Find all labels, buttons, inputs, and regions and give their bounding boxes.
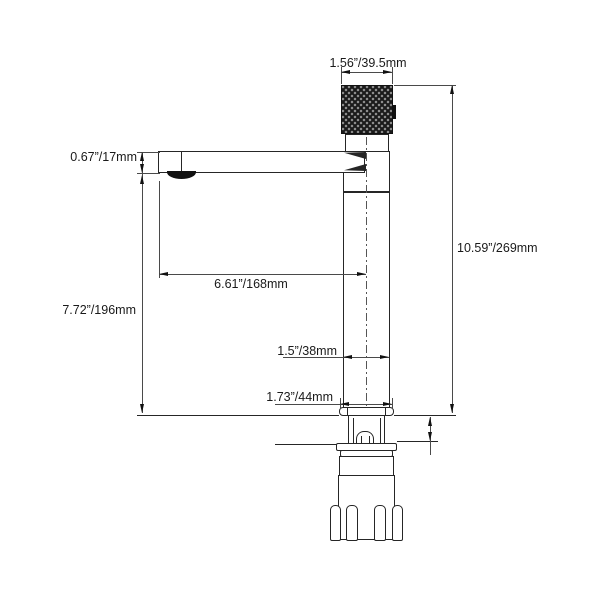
dim-arrow	[357, 272, 366, 276]
ext-line-knob-right	[392, 67, 393, 84]
drawing-canvas: 1.56”/39.5mm 10.59”/269mm 0.67”/17mm 7.7…	[0, 0, 600, 600]
nut-rib-4	[392, 505, 403, 541]
handle-side-tab	[392, 105, 396, 119]
dim-line-overall-height	[452, 85, 453, 413]
deck-line-right	[394, 415, 456, 416]
handle-neck	[345, 134, 389, 152]
dim-arrow	[140, 404, 144, 413]
shank-thread-left	[353, 418, 354, 444]
shank-outer-left	[348, 416, 349, 444]
dim-arrow	[140, 152, 144, 161]
ext-line-spout-tip	[159, 181, 160, 278]
dim-arrow	[380, 355, 389, 359]
dim-arrow	[140, 164, 144, 173]
ext-line-spout-bottom	[137, 173, 160, 174]
flange-inner-line-left	[347, 408, 348, 415]
dim-label-spout-height: 0.67”/17mm	[70, 150, 137, 164]
dim-arrow	[341, 70, 350, 74]
dim-label-base-diameter: 1.73”/44mm	[266, 390, 333, 404]
dim-line-spout-reach	[159, 274, 366, 275]
ext-line-knob-top	[394, 85, 456, 86]
deck-underside-line-right	[397, 441, 438, 442]
nut-rib-1	[330, 505, 341, 541]
dim-arrow	[450, 85, 454, 94]
dim-line-body-diameter	[283, 357, 389, 358]
dim-arrow	[343, 355, 352, 359]
shank-outer-right	[384, 416, 385, 444]
dim-arrow	[383, 70, 392, 74]
flange-inner-line-right	[385, 408, 386, 415]
deck-line-left	[137, 415, 339, 416]
dim-arrow	[428, 417, 432, 426]
dim-arrow	[140, 175, 144, 184]
aerator	[167, 171, 196, 179]
deck-underside-line-left	[275, 444, 337, 445]
dim-arrow	[159, 272, 168, 276]
dim-label-spout-to-deck: 7.72”/196mm	[62, 303, 136, 317]
dim-arrow	[340, 402, 349, 406]
nut-rib-3	[374, 505, 386, 541]
ext-line-flange-right	[392, 398, 393, 409]
dim-label-overall-height: 10.59”/269mm	[457, 241, 538, 255]
dim-line-base-diameter	[275, 404, 392, 405]
dim-arrow	[428, 432, 432, 441]
dim-label-spout-reach: 6.61”/168mm	[214, 277, 288, 291]
nut-rib-2	[346, 505, 358, 541]
centerline	[366, 137, 367, 407]
spout-tip-cap-line	[181, 152, 182, 172]
dim-arrow	[383, 402, 392, 406]
spout	[158, 151, 365, 173]
dim-arrow	[450, 404, 454, 413]
shank-thread-right	[380, 418, 381, 444]
dim-label-body-diameter: 1.5”/38mm	[277, 344, 337, 358]
dim-line-spout-to-deck	[142, 174, 143, 413]
knurled-handle-knob	[341, 85, 393, 134]
mounting-nut-cylinder	[339, 456, 394, 476]
